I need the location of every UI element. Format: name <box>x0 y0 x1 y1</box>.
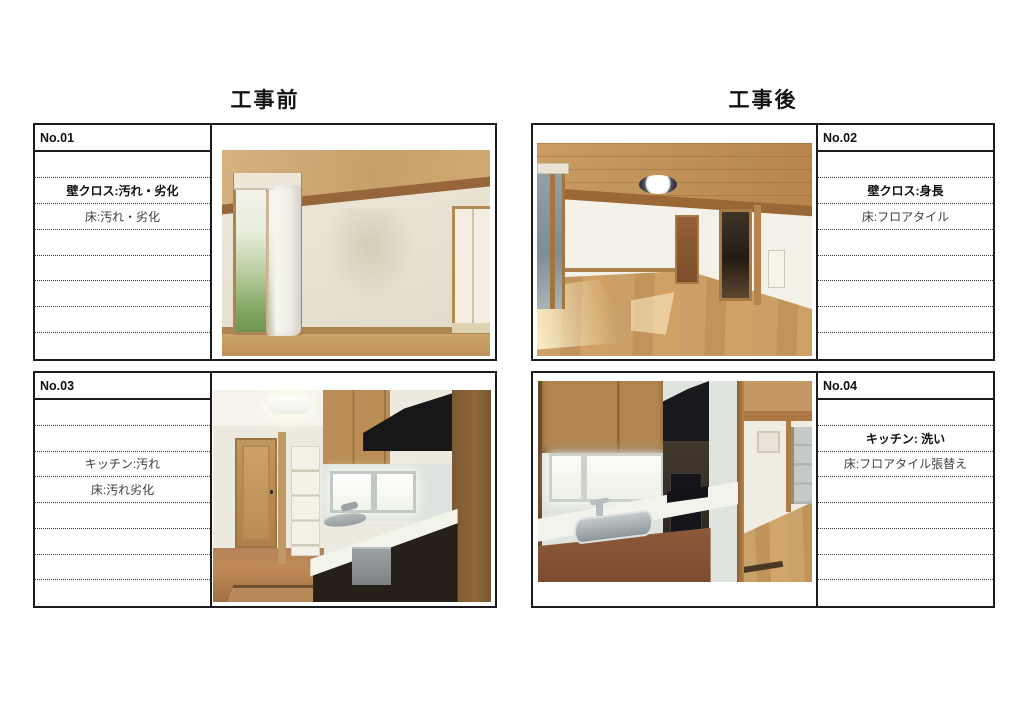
kitchen-window <box>549 453 664 501</box>
table-row: 床:フロアタイル <box>818 204 993 230</box>
table-row <box>35 281 210 307</box>
record-table-no03: No.03 キッチン:汚れ 床:汚れ劣化 <box>35 373 212 606</box>
record-table-no01: No.01 壁クロス:汚れ・劣化 床:汚れ・劣化 <box>35 125 212 359</box>
panel-no03: No.03 キッチン:汚れ 床:汚れ劣化 <box>33 371 497 608</box>
table-row <box>818 230 993 256</box>
door-knob <box>270 490 274 494</box>
door <box>675 215 700 283</box>
door-panel <box>242 445 270 540</box>
photo-kitchen-after <box>538 381 812 582</box>
record-table-no02: No.02 壁クロス:身長 床:フロアタイル <box>816 125 993 359</box>
shutter-box <box>537 163 569 174</box>
wall-hatch <box>757 431 780 453</box>
table-row: 壁クロス:身長 <box>818 178 993 204</box>
after-title: 工事後 <box>531 84 995 114</box>
window <box>537 169 565 310</box>
table-row <box>35 152 210 178</box>
doorway-trim <box>737 381 744 582</box>
door-line <box>472 209 474 334</box>
table-row <box>35 307 210 333</box>
record-number: No.01 <box>35 125 210 152</box>
table-row <box>818 477 993 503</box>
table-row <box>818 503 993 529</box>
record-number: No.04 <box>818 373 993 400</box>
far-door <box>768 250 785 288</box>
table-row: キッチン:汚れ <box>35 452 210 478</box>
report-sheet: 工事前 工事後 No.01 壁クロス:汚れ・劣化 床:汚れ・劣化 <box>0 0 1024 707</box>
upper-cabinets <box>542 381 663 453</box>
photo-living-room-before <box>222 150 490 356</box>
panel-no04: No.04 キッチン: 洗い 床:フロアタイル張替え <box>531 371 995 608</box>
shelf-unit <box>291 446 320 556</box>
panel-no02: No.02 壁クロス:身長 床:フロアタイル <box>531 123 995 361</box>
before-title: 工事前 <box>33 84 497 114</box>
table-row: キッチン: 洗い <box>818 426 993 452</box>
photo-cell <box>533 125 816 359</box>
floor-mat-edge <box>226 585 321 602</box>
photo-living-room-after <box>537 143 812 356</box>
curtain <box>266 185 302 335</box>
table-row <box>35 555 210 581</box>
dishwasher <box>352 547 391 585</box>
table-row <box>35 230 210 256</box>
photo-cell <box>212 373 495 606</box>
wood-door <box>235 438 277 548</box>
table-row: 床:フロアタイル張替え <box>818 452 993 478</box>
table-row <box>818 333 993 359</box>
fluorescent-light <box>269 397 311 414</box>
wood-header <box>741 381 812 411</box>
table-row <box>818 256 993 282</box>
lintel-trim <box>741 411 812 421</box>
door-trim <box>786 421 791 511</box>
table-row <box>818 400 993 426</box>
window <box>233 173 303 336</box>
glass-door <box>791 427 812 503</box>
table-row <box>818 555 993 581</box>
table-row <box>35 256 210 282</box>
open-doorway <box>719 209 752 301</box>
table-row <box>818 529 993 555</box>
table-row: 床:汚れ劣化 <box>35 477 210 503</box>
window-frame <box>550 169 554 310</box>
hall-floor <box>452 323 490 333</box>
record-table-no04: No.04 キッチン: 洗い 床:フロアタイル張替え <box>816 373 993 606</box>
table-row <box>818 281 993 307</box>
wall-stain <box>324 208 415 303</box>
record-number: No.03 <box>35 373 210 400</box>
table-row <box>35 503 210 529</box>
panel-no01: No.01 壁クロス:汚れ・劣化 床:汚れ・劣化 <box>33 123 497 361</box>
table-row <box>35 529 210 555</box>
table-row <box>35 580 210 606</box>
table-row <box>818 152 993 178</box>
table-row <box>818 580 993 606</box>
tall-cabinet <box>452 390 491 602</box>
doorway <box>452 206 490 334</box>
photo-kitchen-before <box>213 390 491 602</box>
table-row <box>35 400 210 426</box>
door-trim <box>754 205 761 305</box>
table-row <box>35 426 210 452</box>
photo-cell <box>212 125 495 359</box>
window-mullion <box>581 456 586 498</box>
table-row: 床:汚れ・劣化 <box>35 204 210 230</box>
door-frame <box>278 432 285 563</box>
table-row <box>35 333 210 359</box>
floor <box>222 333 490 356</box>
table-row: 壁クロス:汚れ・劣化 <box>35 178 210 204</box>
table-row <box>818 307 993 333</box>
window-sash <box>371 474 377 510</box>
record-number: No.02 <box>818 125 993 152</box>
photo-cell <box>533 373 816 606</box>
